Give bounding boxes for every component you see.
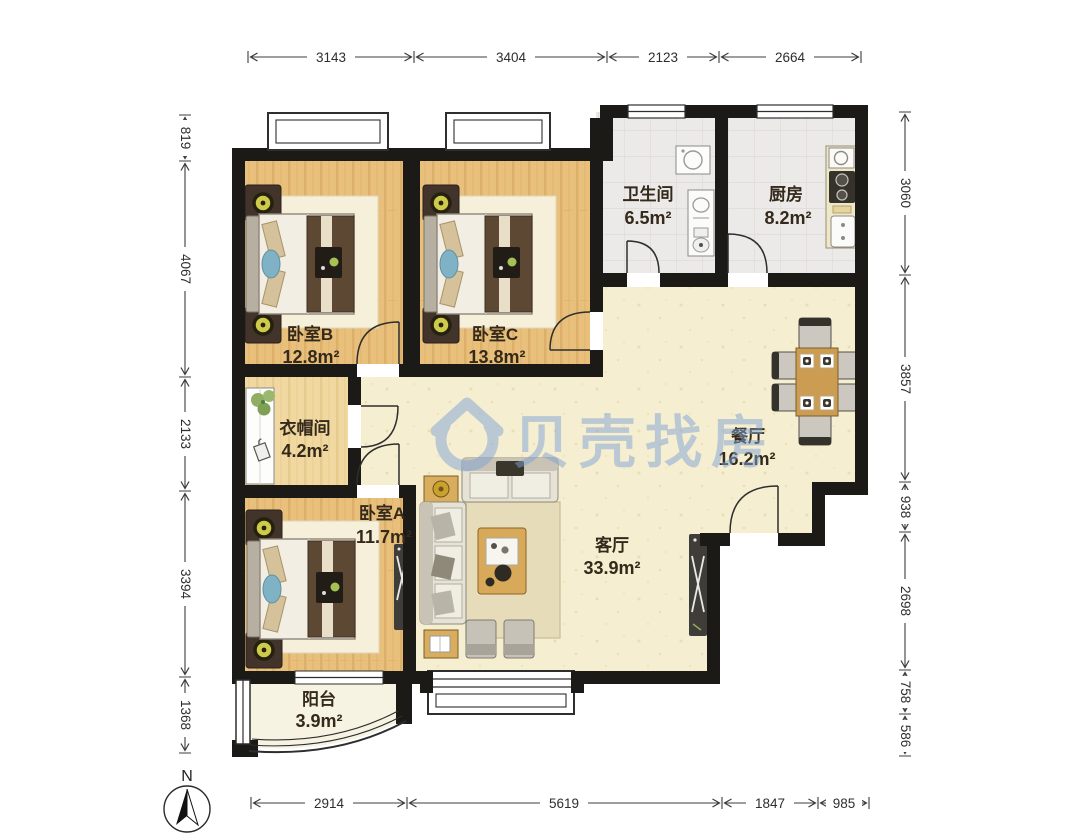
window-icon [757, 105, 833, 118]
dim-right-2: 3857 [898, 364, 913, 394]
dim-top-4: 2664 [775, 50, 806, 65]
bed-icon [423, 185, 556, 343]
dimensions-right: 3060 3857 938 2698 758 586 [897, 112, 913, 756]
dim-left-2: 4067 [178, 254, 193, 284]
bay-window-icon [446, 113, 550, 150]
dim-bottom-4: 985 [833, 796, 856, 811]
kitchen-fixtures [826, 146, 856, 248]
room-area-bedroom-c: 13.8m² [468, 347, 525, 367]
dim-top-2: 3404 [496, 50, 527, 65]
dim-left-4: 3394 [178, 569, 193, 600]
radiator-icon [689, 534, 707, 636]
room-label-cloakroom: 衣帽间 [280, 418, 331, 438]
room-label-bedroom-c: 卧室C [472, 324, 518, 344]
balcony-doorway [295, 671, 383, 684]
cloakroom-furniture [246, 388, 275, 484]
side-table-icon [424, 476, 458, 502]
dim-top-3: 2123 [648, 50, 678, 65]
dim-left-1: 819 [178, 127, 193, 150]
room-area-living: 33.9m² [583, 558, 640, 578]
dim-right-4: 2698 [898, 586, 913, 616]
bed-icon [245, 185, 378, 343]
room-area-balcony: 3.9m² [295, 711, 342, 731]
dim-bottom-3: 1847 [755, 796, 785, 811]
cutting-board-icon [833, 206, 851, 213]
ottoman-icon [466, 620, 496, 658]
watermark-brand-text: 贝壳找房 [513, 411, 777, 475]
room-label-bedroom-a: 卧室A [359, 503, 405, 523]
dim-right-1: 3060 [898, 178, 913, 208]
room-area-bedroom-b: 12.8m² [282, 347, 339, 367]
bay-window-icon [420, 671, 584, 714]
compass-north-label: N [181, 768, 193, 785]
dim-top-1: 3143 [316, 50, 346, 65]
room-label-kitchen: 厨房 [769, 184, 803, 204]
dim-right-3: 938 [898, 496, 913, 519]
dimensions-bottom: 2914 5619 1847 985 [251, 796, 869, 811]
sofa-icon [420, 502, 466, 624]
compass: N [164, 768, 210, 832]
room-area-bathroom: 6.5m² [624, 208, 671, 228]
dim-right-6: 586 [898, 725, 913, 748]
room-area-bedroom-a: 11.7m² [356, 527, 412, 547]
sink-icon [831, 216, 855, 247]
dim-bottom-2: 5619 [549, 796, 579, 811]
window-icon [628, 105, 685, 118]
room-area-kitchen: 8.2m² [764, 208, 811, 228]
room-label-bathroom: 卫生间 [623, 184, 674, 204]
dim-bottom-1: 2914 [314, 796, 345, 811]
room-label-balcony: 阳台 [302, 689, 336, 709]
washing-machine-icon [676, 146, 710, 174]
dim-left-3: 2133 [178, 419, 193, 449]
room-label-living: 客厅 [594, 535, 629, 555]
dimensions-left: 819 4067 2133 3394 1368 [177, 115, 193, 753]
dim-right-5: 758 [898, 681, 913, 704]
room-area-cloakroom: 4.2m² [281, 441, 328, 461]
ottoman-icon [504, 620, 534, 658]
dimensions-top: 3143 3404 2123 2664 [248, 50, 861, 65]
coffee-table-icon [478, 528, 526, 594]
room-label-bedroom-b: 卧室B [287, 324, 333, 344]
side-table-icon [424, 630, 458, 658]
floorplan-page: 卧室B 12.8m² 卧室C 13.8m² 卫生间 6.5m² 厨房 8.2m²… [0, 0, 1080, 837]
bay-window-icon [268, 113, 388, 150]
toilet-vanity-icon [688, 190, 714, 256]
dim-left-5: 1368 [178, 700, 193, 730]
floor-plan-svg: 卧室B 12.8m² 卧室C 13.8m² 卫生间 6.5m² 厨房 8.2m²… [0, 0, 1080, 837]
stove-icon [829, 171, 855, 203]
